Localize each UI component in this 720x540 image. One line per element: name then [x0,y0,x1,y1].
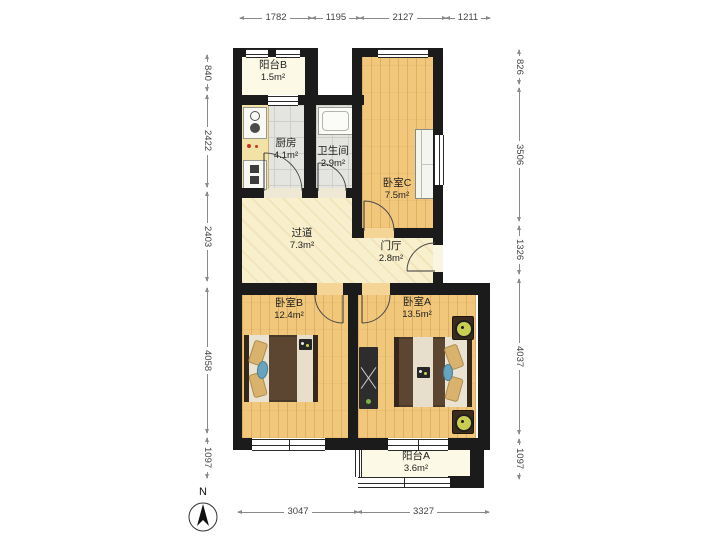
dimension-bottom-1: 3047 [238,505,358,519]
dimension-top-2: 1195 [312,11,360,25]
room-label-bedroom-a: 卧室A 13.5m² [402,296,432,321]
room-label-kitchen: 厨房 4.1m² [274,137,298,162]
room-label-balcony-a: 阳台A 3.6m² [402,450,430,475]
room-label-bedroom-c: 卧室C 7.5m² [383,177,412,202]
room-label-balcony-b: 阳台B 1.5m² [259,59,287,84]
dimension-left-3: 2403 [200,192,214,281]
dimension-top-1: 1782 [240,11,312,25]
dimension-top-3: 2127 [360,11,446,25]
dimension-right-4: 4037 [512,279,526,434]
dimension-right-3: 1326 [512,226,526,274]
dimension-right-1: 826 [512,50,526,84]
dimension-left-5: 1097 [200,438,214,478]
bedroom-b-door-arc [315,295,343,323]
room-label-corridor: 过道 7.3m² [290,227,314,252]
bedroom-a-door-arc [362,295,390,323]
north-arrow-icon [185,499,225,535]
bedroom-c-door-arc [364,201,394,231]
floor-plan: 阳台B 1.5m² 厨房 4.1m² 卫生间 2.9m² 卧室C 7.5m² 过… [0,0,720,540]
dimension-left-4: 4058 [200,288,214,433]
dimension-left-1: 840 [200,55,214,91]
north-label: N [199,486,207,498]
room-label-bathroom: 卫生间 2.9m² [317,145,349,170]
door-arcs [0,0,720,540]
dimension-top-4: 1211 [446,11,490,25]
entry-door-arc [407,243,435,271]
dimension-bottom-2: 3327 [358,505,489,519]
dimension-right-2: 3506 [512,88,526,221]
dimension-right-5: 1097 [512,439,526,479]
dimension-left-2: 2422 [200,95,214,187]
room-label-hall: 门厅 2.8m² [379,240,403,265]
room-label-bedroom-b: 卧室B 12.4m² [274,297,304,322]
